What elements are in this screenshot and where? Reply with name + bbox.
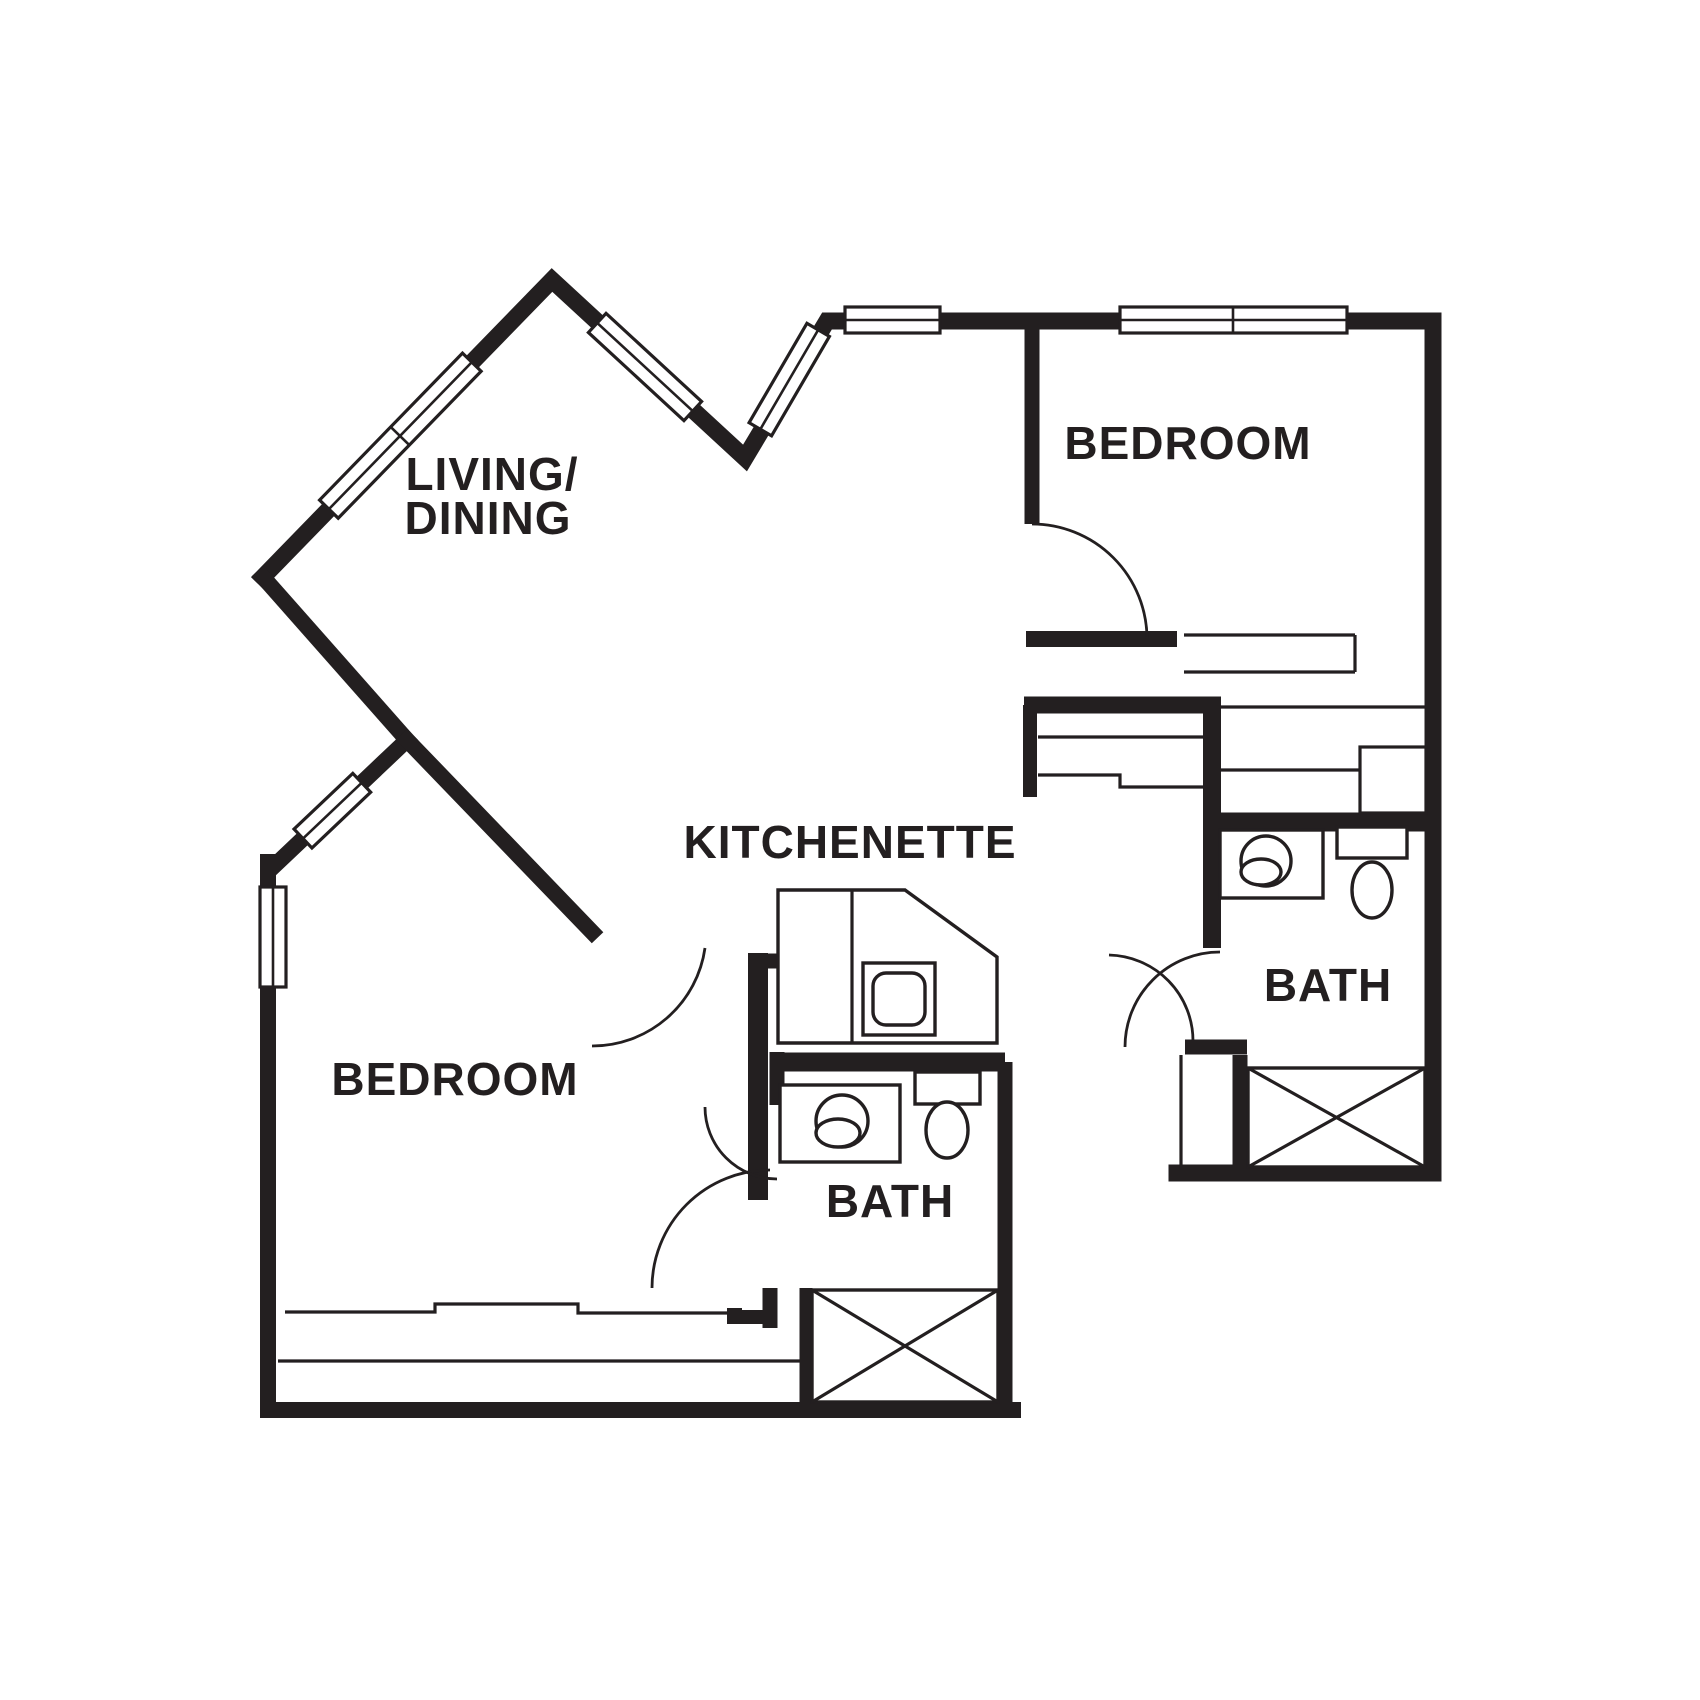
floor-plan: LIVING/ DINING BEDROOM KITCHENETTE BATH … [0,0,1700,1700]
bath-bottom-fixtures [780,1072,998,1402]
door-arc-hall-right [1109,955,1193,1041]
partition-living-bedroom [407,740,592,932]
builtin-corner-block [727,1308,742,1324]
room-label-bath-bottom: BATH [826,1175,954,1227]
sink-basin-icon [1241,859,1281,885]
window-bedroom-left [260,887,286,987]
builtin-bedroom-bottom [278,1304,800,1361]
door-arc-bedroom-top [1032,524,1147,639]
door-arc-bath-right [1125,952,1220,1047]
kitchen-sink-basin-icon [873,973,925,1025]
toilet-icon [926,1102,968,1158]
window-bedroom-diagonal [294,773,371,848]
closet-bedroom-top-shelf [1184,635,1355,672]
window-hall-top [845,307,940,333]
room-label-bedroom-bottom: BEDROOM [331,1053,578,1105]
toilet-icon [1352,862,1392,918]
kitchenette-counter [778,890,997,1043]
room-label-bedroom-top: BEDROOM [1064,417,1311,469]
window-living-valley-right [749,323,829,435]
window-living-peak-right [588,313,701,420]
bathtub-icon [1248,1068,1425,1167]
exterior-wall-living-left [263,577,407,740]
room-label-kitchenette: KITCHENETTE [684,816,1017,868]
door-arc-living-hall [592,948,705,1046]
windows [260,307,1347,987]
toilet-tank-icon [915,1072,980,1104]
room-label-living-line2: DINING [405,492,572,544]
closet-niche-shelves [1038,737,1203,787]
bathtub-icon [812,1290,998,1402]
window-bedroom-top [1120,307,1347,333]
toilet-tank-icon [1337,827,1407,858]
closet-right-shelves [1221,707,1426,770]
sink-basin-icon [816,1119,860,1147]
closet-right-cabinet [1360,747,1426,813]
room-label-bath-right: BATH [1264,959,1392,1011]
